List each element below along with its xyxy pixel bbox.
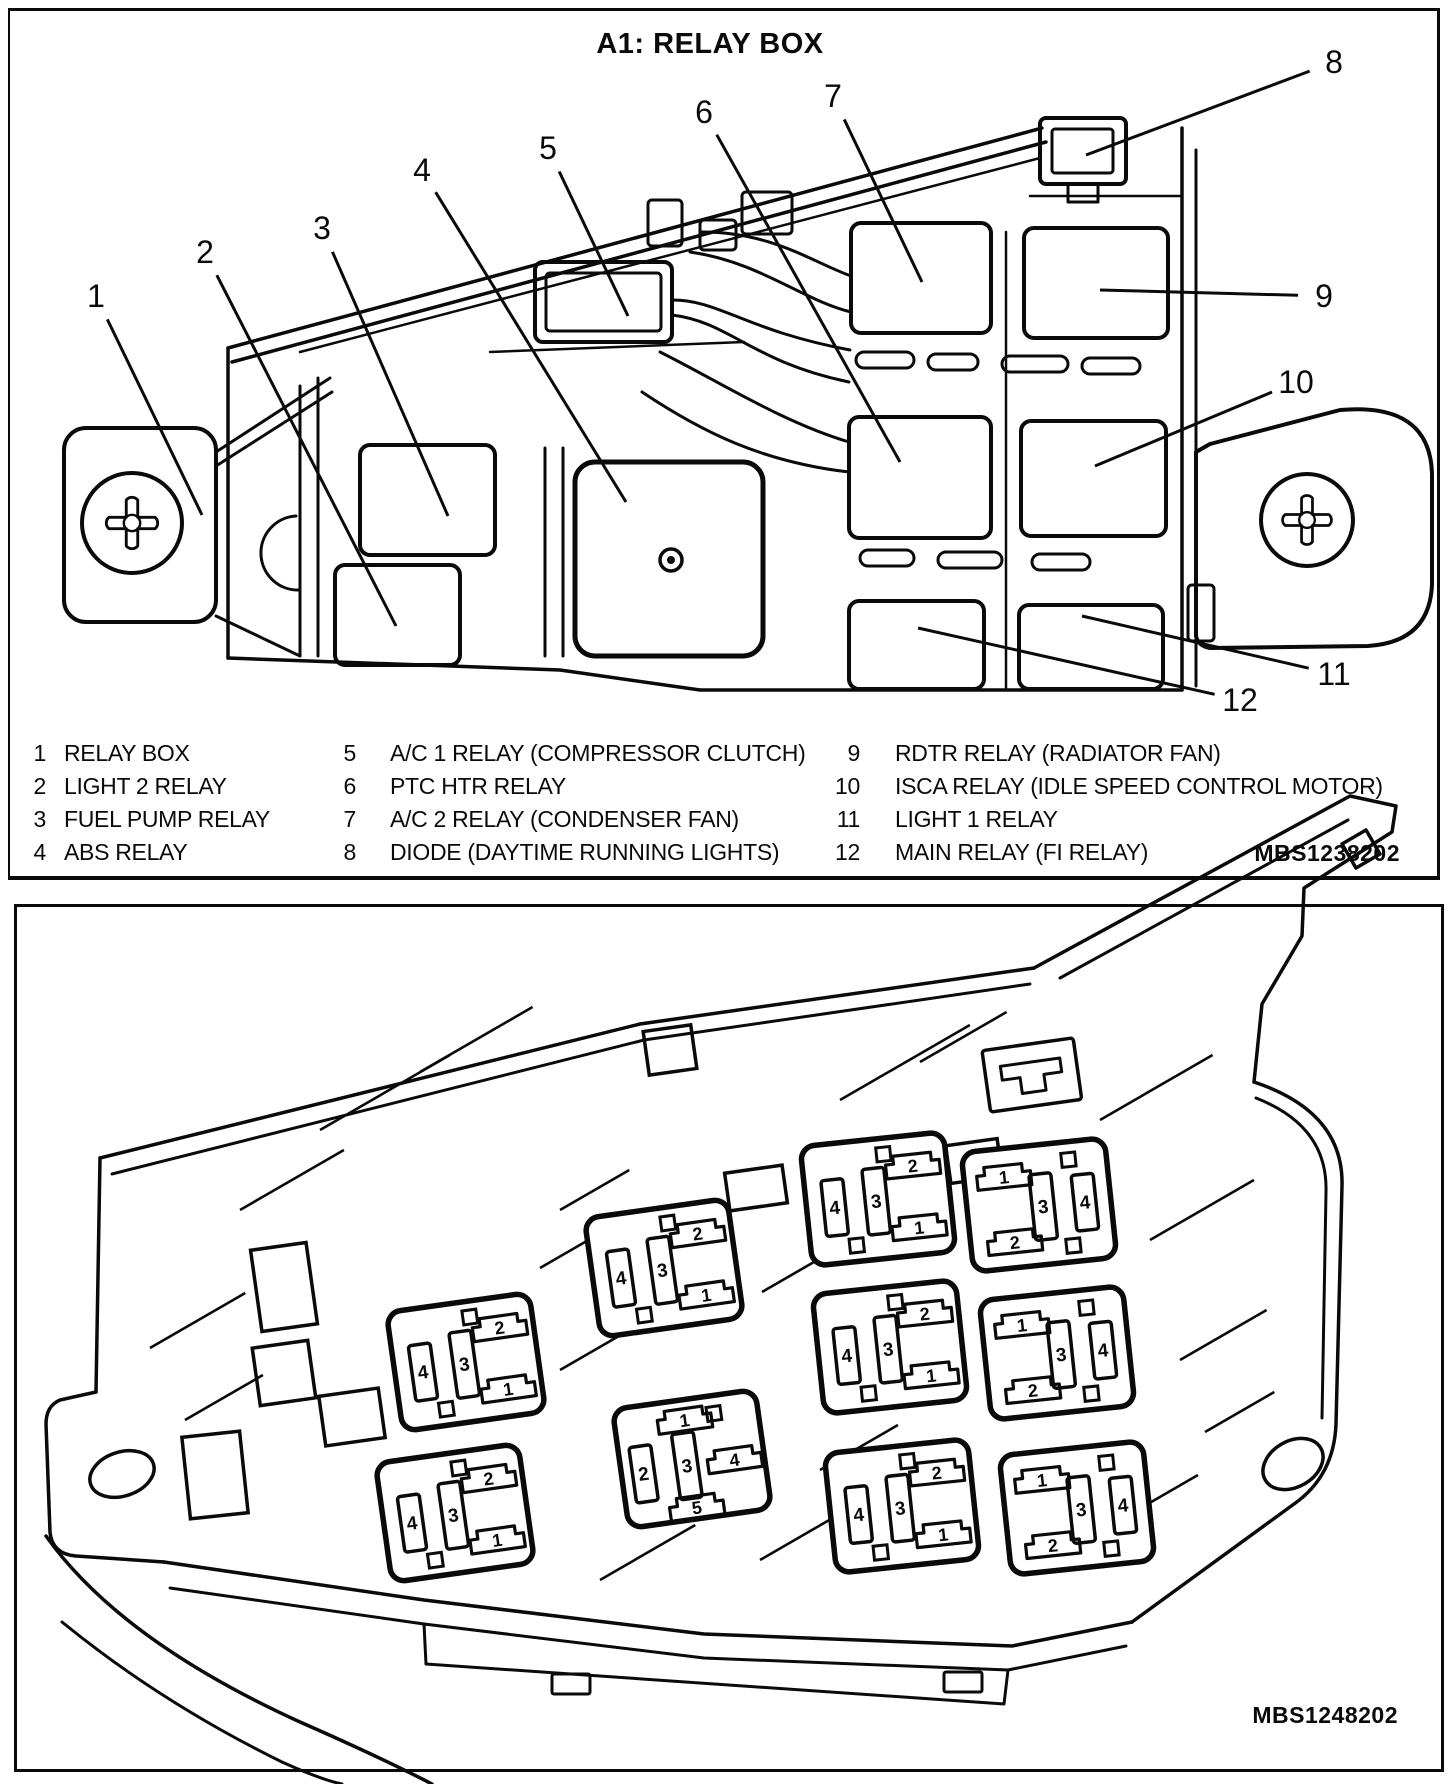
relay-box-photo-panel	[14, 904, 1444, 1772]
relay-box-figure-panel	[8, 8, 1440, 880]
